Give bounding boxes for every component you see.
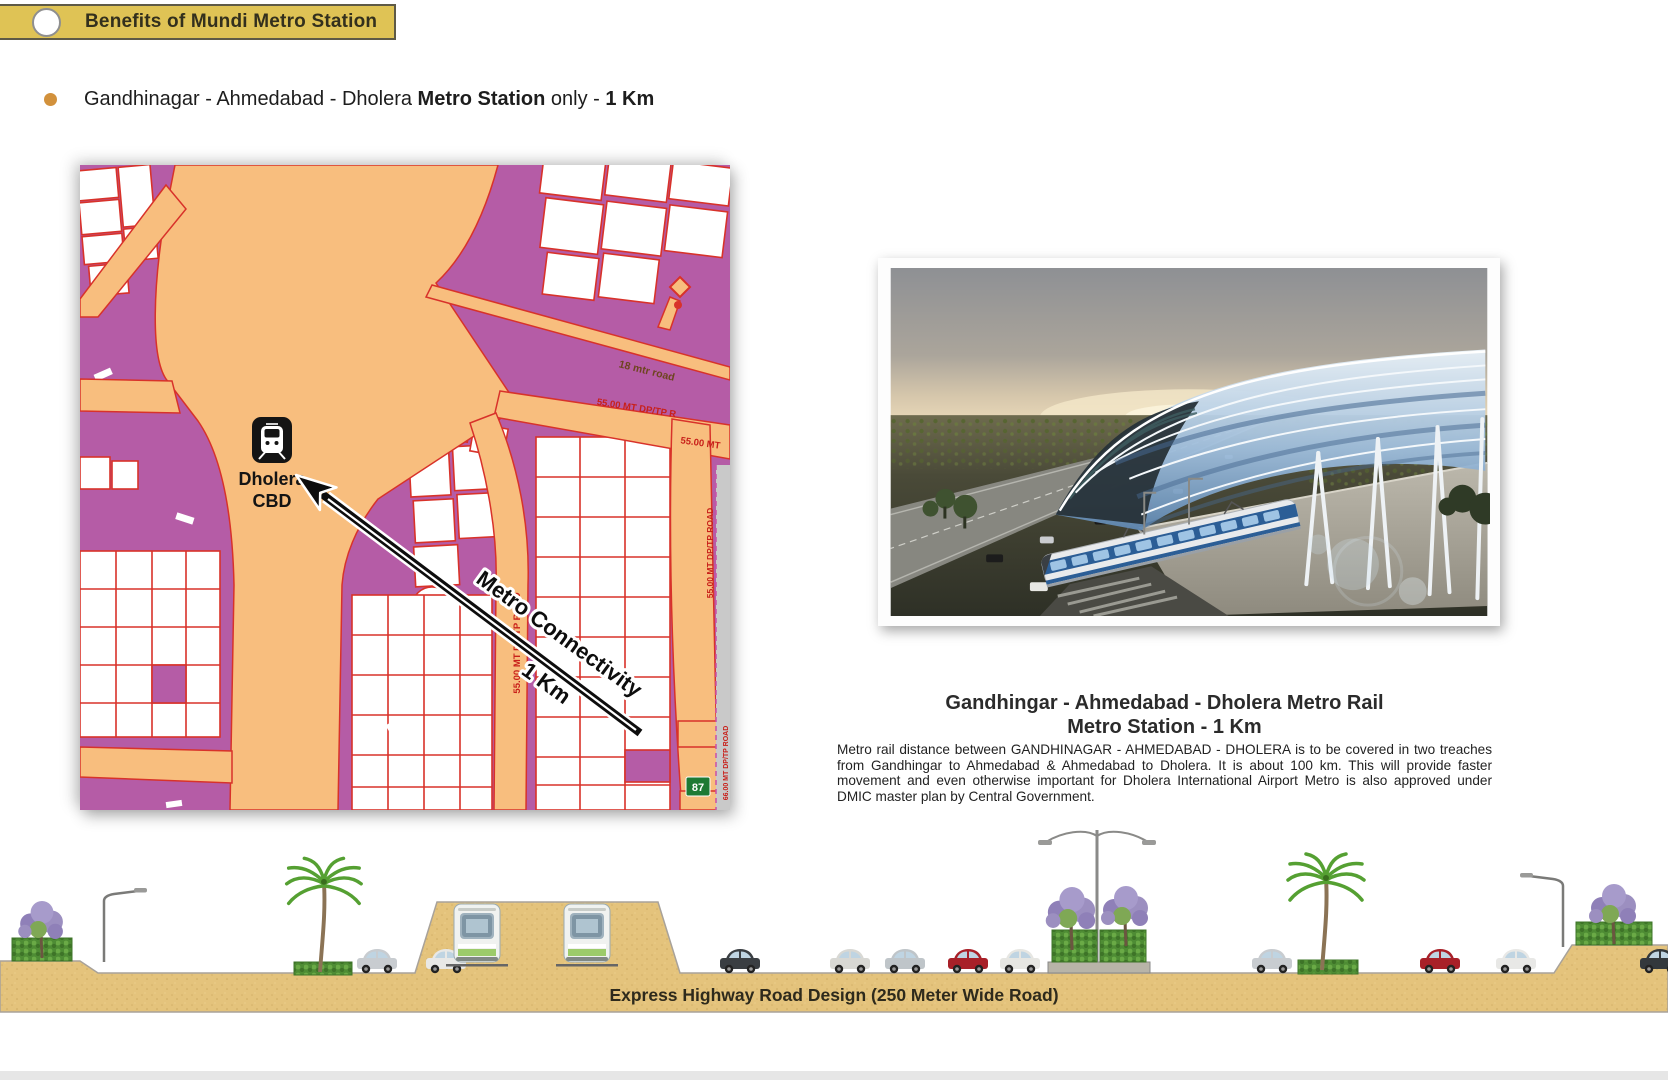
road-label-66-vertical: 66.00 MT DP/TP ROAD (723, 726, 730, 801)
page-title: Benefits of Mundi Metro Station (85, 11, 377, 33)
photo-heading-line2: Metro Station - 1 Km (837, 716, 1492, 739)
station-label-line2: CBD (253, 491, 292, 511)
tram (564, 904, 610, 962)
palm-tree-left (287, 858, 361, 972)
bullet-text-bold2: 1 Km (605, 88, 654, 110)
car (948, 949, 988, 973)
tram (454, 904, 500, 962)
tram-rail (556, 964, 618, 967)
map-node-dot (674, 301, 682, 309)
car (885, 949, 925, 973)
cross-section-caption: Express Highway Road Design (250 Meter W… (609, 985, 1058, 1005)
photo-heading-line1: Gandhingar - Ahmedabad - Dholera Metro R… (837, 692, 1492, 715)
highway-shield-number: 87 (692, 782, 704, 794)
title-banner: Benefits of Mundi Metro Station (0, 4, 396, 40)
metro-station-photo (878, 258, 1500, 626)
car (830, 949, 870, 973)
car (1252, 949, 1292, 973)
bullet-text-pre: Gandhinagar - Ahmedabad - Dholera (84, 88, 418, 110)
highway-shield: 87 (686, 777, 710, 796)
car (1420, 949, 1460, 973)
median-planter (1038, 830, 1156, 973)
bullet-text-bold1: Metro Station (418, 88, 546, 110)
tram-rail (446, 964, 508, 967)
bullet-dot-icon (44, 93, 57, 106)
station-label-line1: Dholera (238, 469, 306, 489)
bullet-text: Gandhinagar - Ahmedabad - Dholera Metro … (84, 88, 654, 111)
photo-description: Metro rail distance between GANDHINAGAR … (837, 742, 1492, 805)
banner-circle-icon (32, 8, 61, 37)
road-cross-section-illustration: Express Highway Road Design (250 Meter W… (0, 812, 1668, 1017)
palm-hedge-right (1298, 960, 1358, 974)
palm-tree-right (1288, 854, 1364, 970)
car (720, 949, 760, 973)
metro-station-icon (252, 417, 292, 463)
street-lamp-left (104, 888, 147, 962)
car (357, 949, 397, 973)
car (1496, 949, 1536, 973)
dholera-map-image: 18 mtr road 55.00 MT DP/TP R 55.00 MT 55… (80, 165, 730, 810)
bullet-line: Gandhinagar - Ahmedabad - Dholera Metro … (44, 88, 654, 111)
bottom-strip (0, 1071, 1668, 1080)
cross-section-svg: Express Highway Road Design (250 Meter W… (0, 812, 1668, 1017)
road-label-55-vertical-2: 55.00 MT DP/TP ROAD (705, 508, 715, 599)
car (1000, 949, 1040, 973)
bullet-text-mid: only - (545, 88, 605, 110)
palm-hedge-left (294, 962, 352, 975)
photo-svg (888, 268, 1490, 616)
slide: Benefits of Mundi Metro Station Gandhina… (0, 0, 1668, 1080)
street-lamp-right (1520, 873, 1563, 947)
map-svg: 18 mtr road 55.00 MT DP/TP R 55.00 MT 55… (80, 165, 730, 810)
